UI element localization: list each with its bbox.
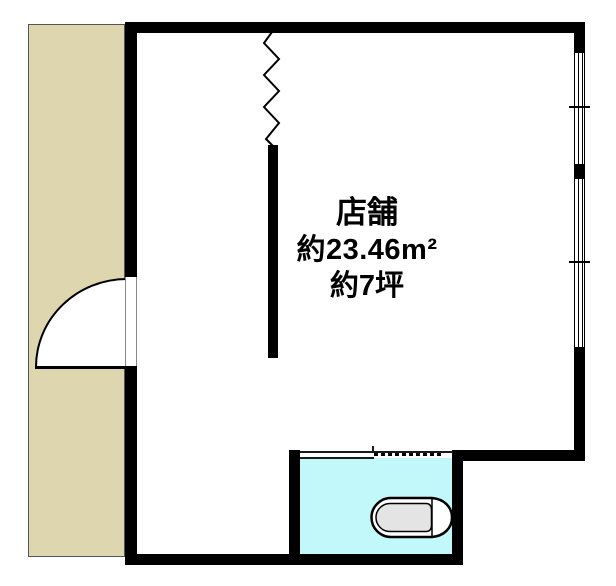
wc-opening-line-inner xyxy=(300,457,374,459)
window-pane-line xyxy=(578,179,583,347)
wall-left-lower xyxy=(125,368,137,565)
room-area-sqm: 約23.46m² xyxy=(247,232,487,268)
toilet-icon xyxy=(366,495,455,540)
window-pane-line xyxy=(578,53,583,164)
wc-dashed-door-line xyxy=(374,453,444,456)
wall-right-lower xyxy=(574,348,585,461)
window-upper xyxy=(574,52,585,165)
wc-opening-tick xyxy=(372,446,374,452)
zigzag-break-line-icon xyxy=(258,31,288,147)
wall-bottom-right-horizontal xyxy=(453,450,585,461)
room-area-tsubo: 約7坪 xyxy=(247,268,487,304)
wall-right-mid-block xyxy=(574,165,585,178)
door-threshold xyxy=(125,277,137,368)
room-label-block: 店舗 約23.46m² 約7坪 xyxy=(247,194,487,304)
room-name: 店舗 xyxy=(247,194,487,232)
wall-right-top-block xyxy=(574,22,585,52)
wall-top xyxy=(125,22,585,33)
wall-left-upper xyxy=(125,22,137,277)
window-mullion-tick xyxy=(569,261,590,263)
door-leaf xyxy=(35,366,137,369)
window-lower xyxy=(574,178,585,348)
floorplan-canvas: 店舗 約23.46m² 約7坪 xyxy=(0,0,616,586)
window-mullion-tick xyxy=(569,106,590,108)
wall-wc-left xyxy=(289,450,300,565)
